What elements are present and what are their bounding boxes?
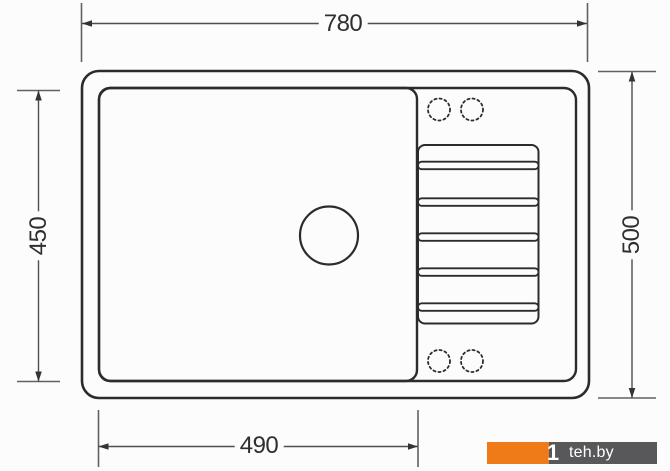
drainboard [418,145,539,324]
sink-shapes [82,71,589,398]
sink-bowl [99,88,417,381]
tap-hole-markings [428,99,483,373]
watermark-site-name: teh.by [569,445,614,461]
arrow-left-icon [99,443,109,450]
technical-drawing-page: 780 490 450 500 teh.by 1 [0,0,670,471]
top-dimension-label: 780 [319,12,368,36]
watermark-orange-block [487,442,549,464]
watermark-gray-block: teh.by [549,442,657,464]
arrow-up-icon [35,91,42,101]
drainboard-groove [418,268,539,276]
tap-hole-marking [461,99,483,121]
sink-technical-drawing [0,0,670,471]
dimension-arrowheads [35,20,635,450]
drainboard-groove [418,233,539,241]
drainboard-groove [418,162,539,170]
arrow-down-icon [629,388,636,398]
sink-outer-edge [82,71,589,398]
bottom-dimension-label: 490 [235,434,284,458]
arrow-right-icon [408,443,418,450]
drain-hole [300,207,358,265]
tap-hole-marking [428,99,450,121]
drainboard-groove [418,303,539,311]
arrow-right-icon [577,20,587,27]
tap-hole-marking [461,350,483,372]
arrow-down-icon [35,372,42,382]
watermark-banner: teh.by [487,442,657,464]
arrow-left-icon [82,20,92,27]
arrow-up-icon [629,72,636,82]
tehby-logo-icon: 1 [543,441,563,465]
right-dimension-label: 500 [620,211,644,260]
drainboard-groove [418,198,539,206]
tap-hole-marking [428,350,450,372]
sink-rim-inner-edge [99,88,576,381]
left-dimension-label: 450 [27,212,51,261]
